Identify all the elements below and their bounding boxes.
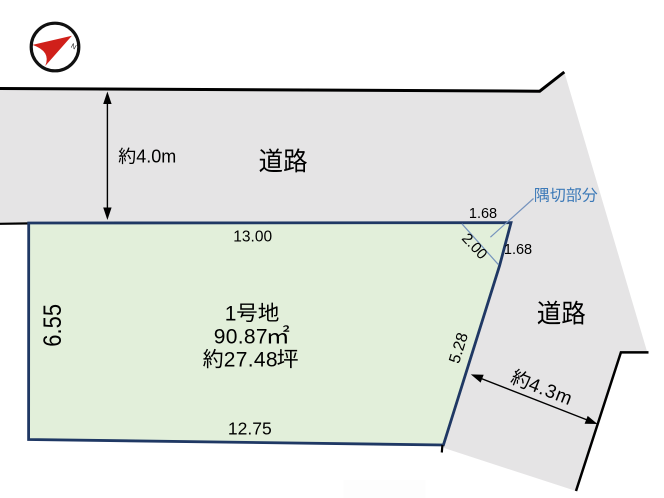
- svg-text:12.75: 12.75: [228, 419, 272, 439]
- svg-text:27.48: 27.48: [224, 349, 278, 372]
- svg-text:4.0m: 4.0m: [136, 147, 176, 167]
- svg-text:1.68: 1.68: [504, 242, 532, 258]
- svg-text:13.00: 13.00: [233, 228, 272, 245]
- svg-text:90.87: 90.87: [214, 326, 268, 349]
- svg-text:1.68: 1.68: [469, 206, 497, 222]
- svg-text:6.55: 6.55: [39, 304, 66, 347]
- svg-text:1: 1: [225, 302, 237, 325]
